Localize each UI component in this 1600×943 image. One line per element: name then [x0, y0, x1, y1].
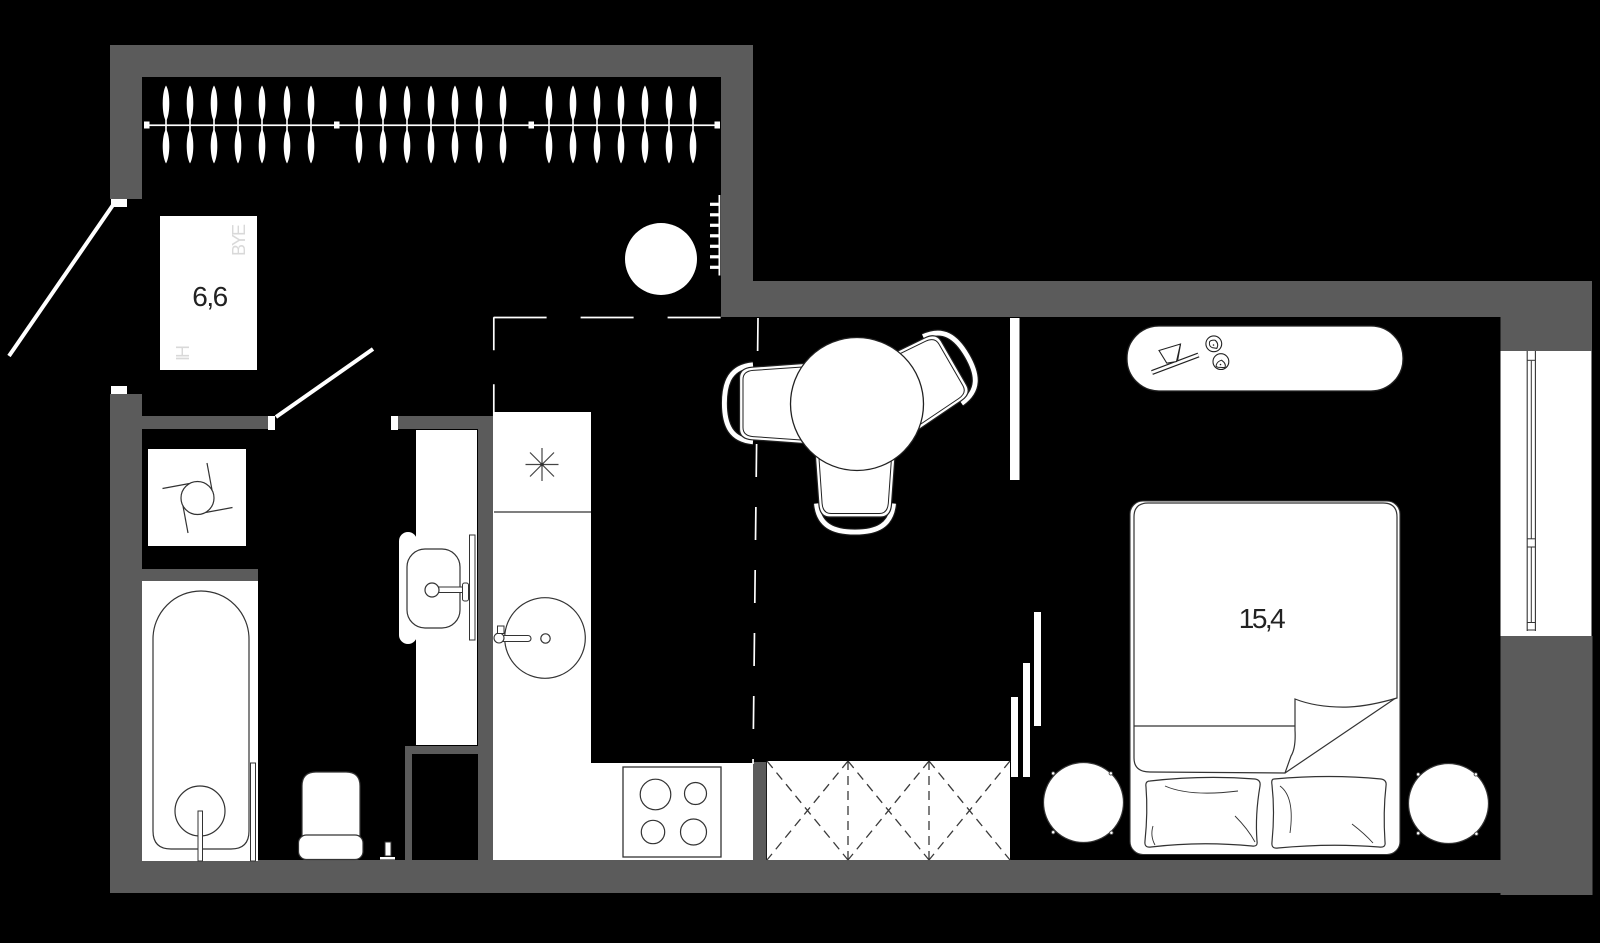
- svg-text:6,6: 6,6: [192, 281, 227, 312]
- svg-text:15,4: 15,4: [1239, 603, 1285, 634]
- svg-text:IH: IH: [173, 346, 193, 361]
- svg-text:BYE: BYE: [229, 224, 249, 256]
